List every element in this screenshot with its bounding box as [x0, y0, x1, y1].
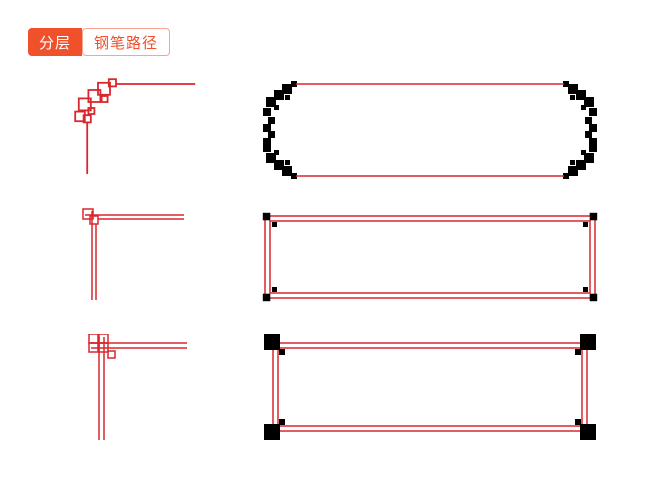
- knot-corner-detail: [85, 334, 187, 440]
- knot-border-frame: [262, 334, 598, 440]
- fret-corner-detail: [74, 78, 196, 174]
- asset-type-tabs: 分层 钢笔路径: [28, 28, 170, 56]
- tab-pen-path[interactable]: 钢笔路径: [82, 28, 170, 56]
- interlock-corner-detail: [82, 208, 184, 300]
- tab-layered[interactable]: 分层: [28, 28, 82, 56]
- interlock-border-frame: [262, 212, 598, 302]
- fret-border-frame: [262, 80, 598, 180]
